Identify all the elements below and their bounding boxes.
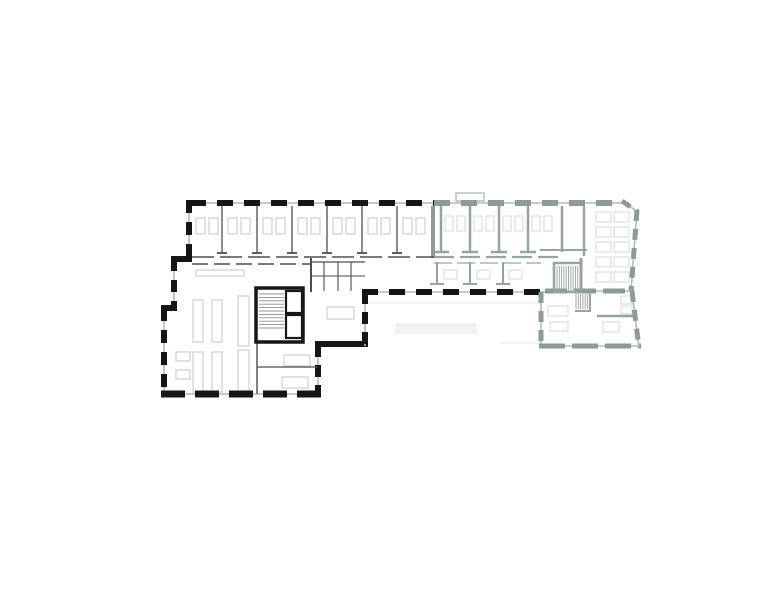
desk xyxy=(284,355,310,366)
desk xyxy=(298,218,307,234)
hall-table xyxy=(614,272,629,282)
table-long xyxy=(212,352,222,392)
shelf xyxy=(196,270,244,276)
desk xyxy=(515,216,523,231)
annex-desk xyxy=(621,306,632,314)
hall-table xyxy=(614,257,629,267)
hall-table xyxy=(596,212,611,222)
desk xyxy=(311,218,320,234)
hall-table xyxy=(614,242,629,252)
desk xyxy=(509,270,522,279)
hall-table xyxy=(596,227,611,237)
hall-table xyxy=(596,272,611,282)
junction-stair-enclosure xyxy=(554,263,581,292)
hall-table xyxy=(596,242,611,252)
ground-hatch-band xyxy=(396,324,476,333)
annex-east-wall xyxy=(632,291,639,348)
floor-plan-drawing xyxy=(0,0,768,606)
annex-desk xyxy=(550,322,568,331)
elevator-shaft xyxy=(286,291,302,313)
table-long xyxy=(193,300,203,342)
desk xyxy=(346,218,355,234)
desk xyxy=(457,216,465,231)
desk xyxy=(333,218,342,234)
desk xyxy=(416,218,425,234)
desk xyxy=(477,270,490,279)
desk xyxy=(381,218,390,234)
desk xyxy=(368,218,377,234)
table-long xyxy=(238,350,249,392)
annex-desk xyxy=(548,306,568,316)
desk xyxy=(263,218,272,234)
desk xyxy=(327,307,354,319)
table-long xyxy=(193,352,203,392)
table-long xyxy=(238,296,249,346)
desk xyxy=(445,216,453,231)
annex-desk xyxy=(603,322,619,332)
desk xyxy=(474,216,482,231)
elevator-shaft xyxy=(286,315,302,338)
desk xyxy=(276,218,285,234)
desk xyxy=(176,352,190,361)
desk xyxy=(403,218,412,234)
desk xyxy=(209,218,218,234)
desk xyxy=(444,270,457,279)
entrance-canopy xyxy=(456,193,484,201)
desk xyxy=(544,216,552,231)
desk xyxy=(228,218,237,234)
desk xyxy=(196,218,205,234)
desk xyxy=(532,216,540,231)
desk xyxy=(503,216,511,231)
desk xyxy=(486,216,494,231)
table-long xyxy=(212,300,222,342)
hall-table xyxy=(596,257,611,267)
hall-table xyxy=(614,212,629,222)
desk xyxy=(176,370,190,379)
desk xyxy=(241,218,250,234)
hall-table xyxy=(614,227,629,237)
floor-plan-canvas xyxy=(0,0,768,606)
desk xyxy=(282,377,308,388)
